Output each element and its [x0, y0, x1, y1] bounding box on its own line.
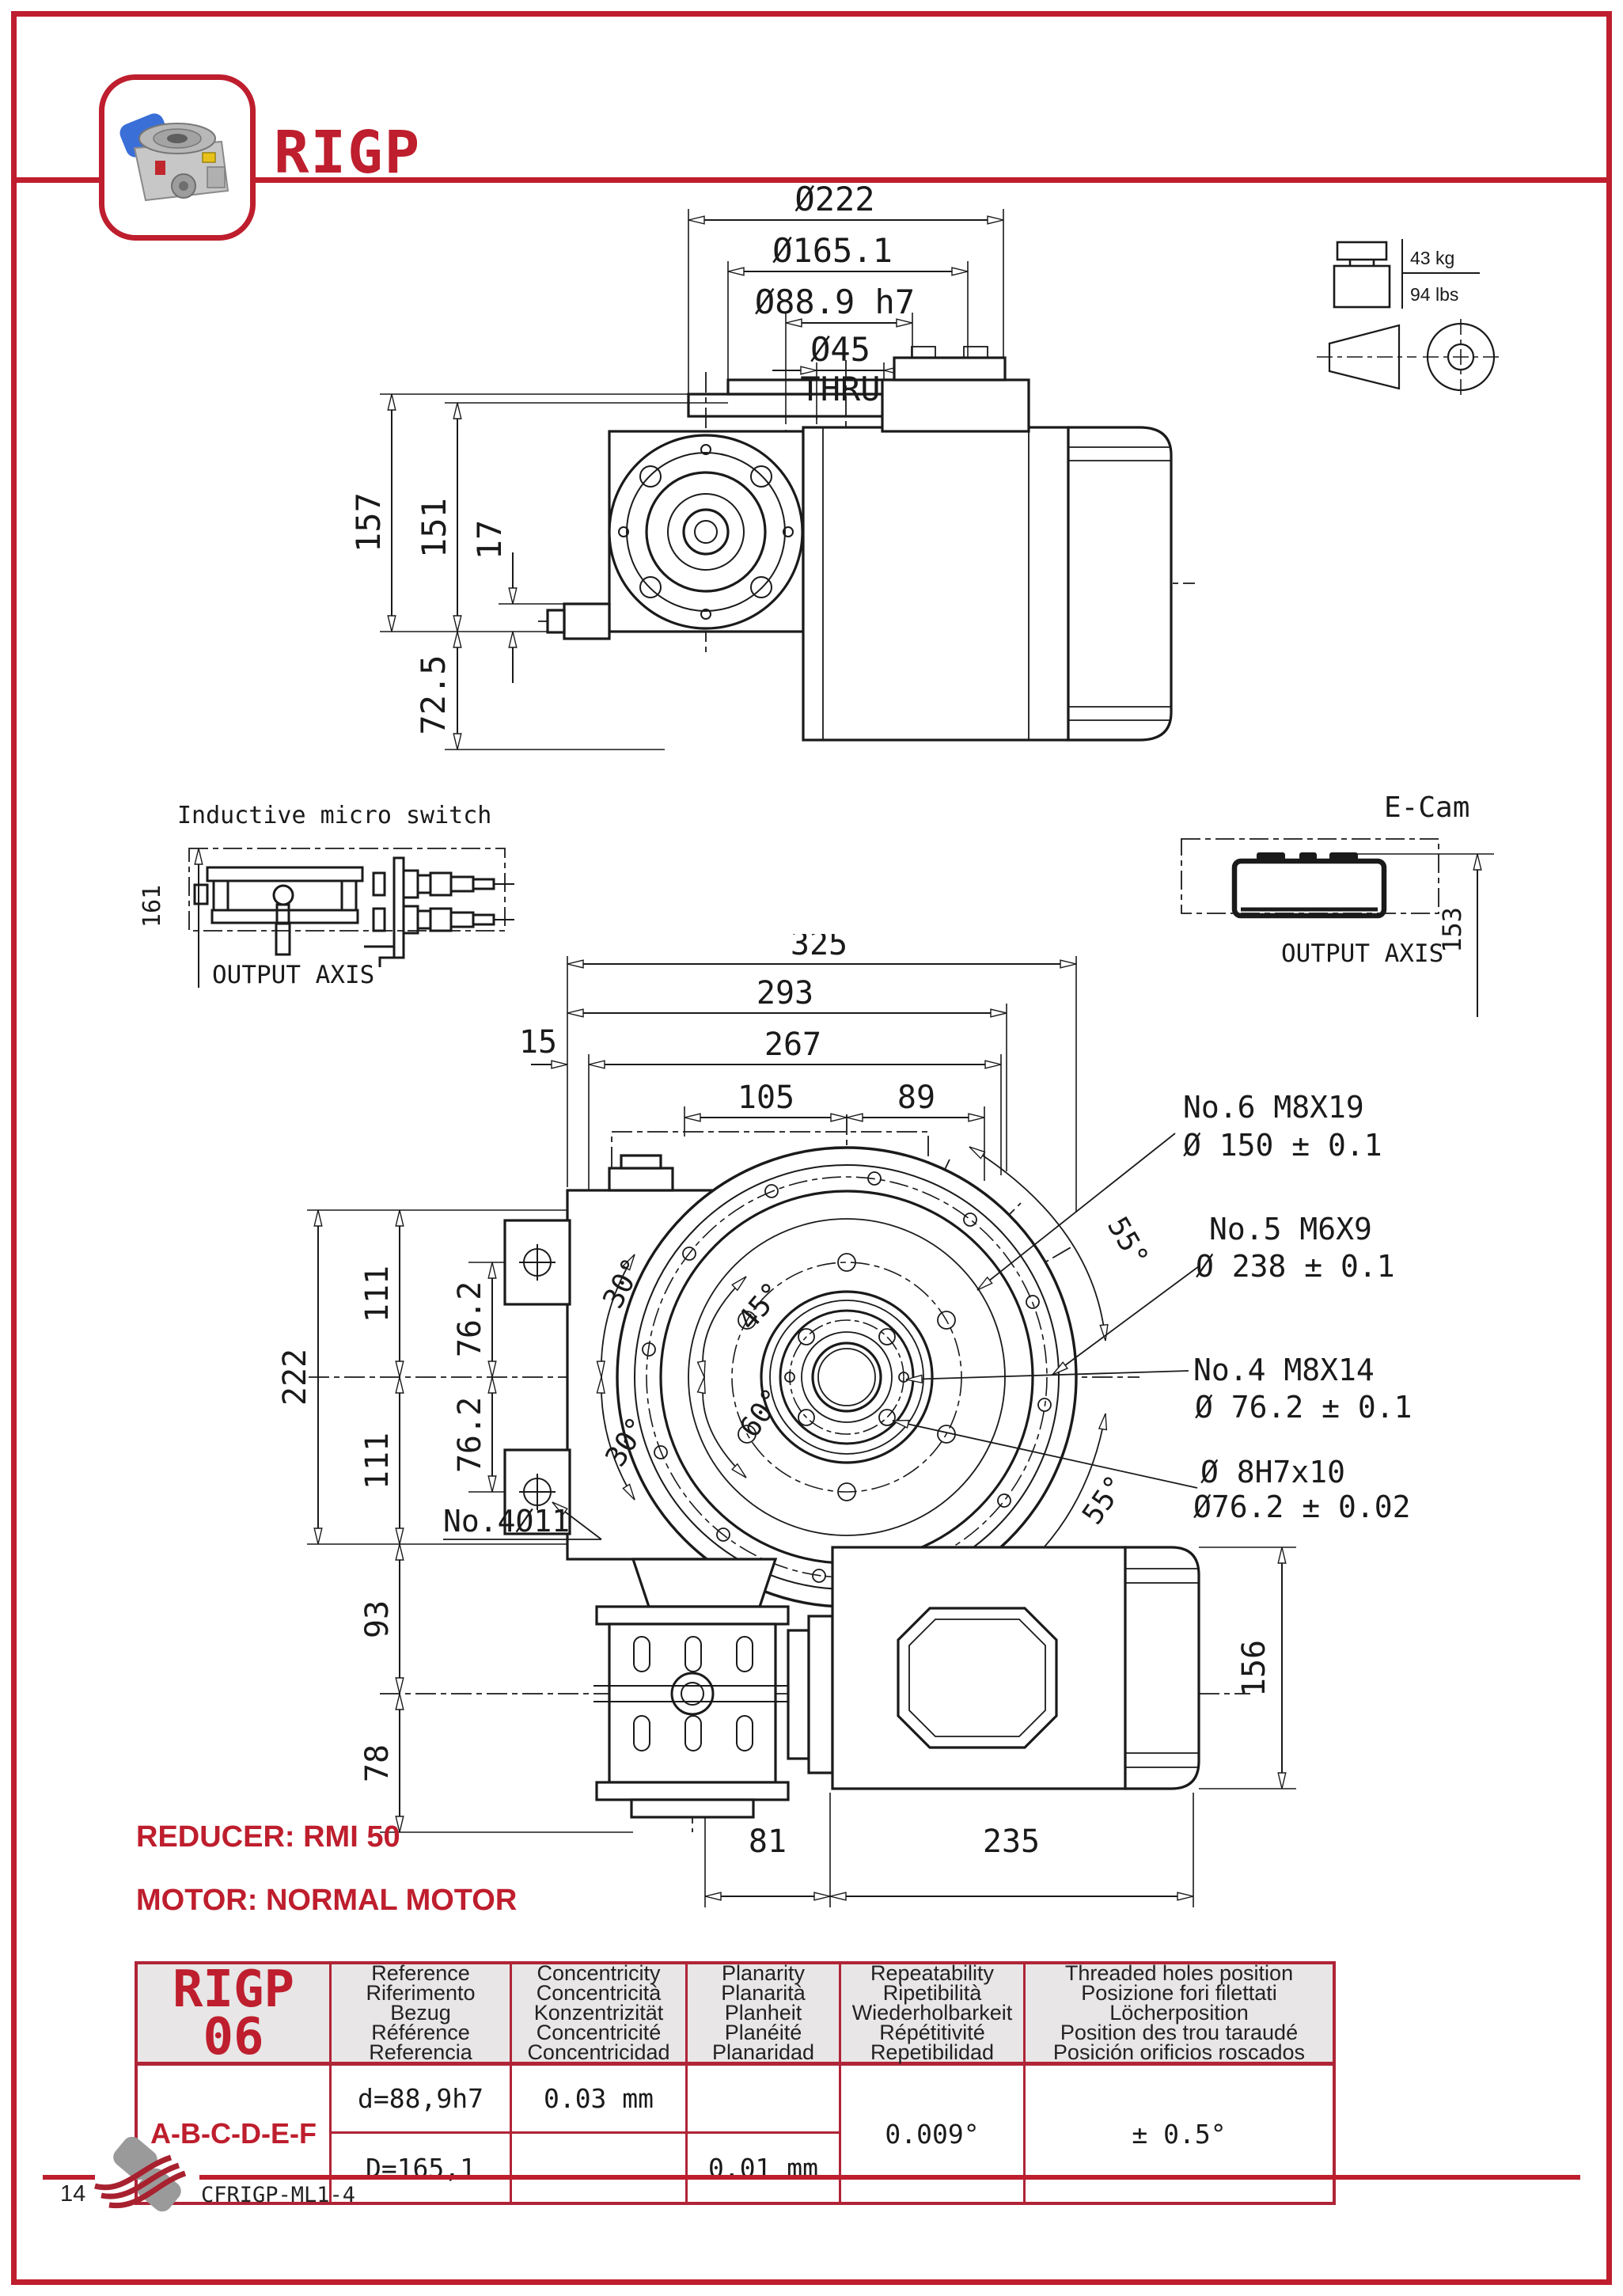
dim-label: 111: [359, 1266, 396, 1323]
product-photo: [111, 91, 244, 224]
table-header-reference: Reference Riferimento Bezug Référence Re…: [332, 1964, 512, 2066]
micro-switch-title: Inductive micro switch: [177, 802, 491, 829]
footer-rule-left: [43, 2175, 95, 2180]
dim-label: Ø222: [794, 182, 874, 218]
table-header-concentricity: Concentricity Concentricità Konzentrizit…: [512, 1964, 688, 2066]
weight-kg: 43 kg: [1410, 248, 1454, 268]
datasheet-page: RIGP: [0, 0, 1623, 2296]
annotation-label: No.6 M8X19: [1183, 1090, 1364, 1125]
projection-symbol-icon: [1317, 319, 1499, 395]
dim-label: Ø88.9 h7: [755, 283, 915, 321]
company-logo: [92, 2137, 203, 2216]
table-value-planarity-2: 0.01 mm: [688, 2134, 841, 2202]
dim-label: 151: [415, 498, 453, 558]
side-view-drawing: Ø222 Ø165.1 Ø88.9 h7 Ø45 THRU 157 151 17…: [269, 182, 1298, 799]
dim-label: 235: [983, 1824, 1040, 1860]
dim-label: 267: [764, 1027, 821, 1063]
annotation-label: Ø 150 ± 0.1: [1183, 1128, 1382, 1163]
table-header-threaded-holes: Threaded holes position Posizione fori f…: [1026, 1964, 1333, 2066]
dim-label: 76.2: [452, 1281, 488, 1357]
page-number: 14: [60, 2181, 85, 2207]
e-cam-title: E-Cam: [1384, 791, 1469, 824]
annotation-label: Ø 8H7x10: [1200, 1455, 1345, 1490]
dim-label: 293: [757, 975, 813, 1011]
dim-label: 93: [359, 1600, 396, 1638]
dim-label: 222: [277, 1349, 313, 1406]
dim-label: 157: [349, 492, 388, 552]
table-model-cell: RIGP 06: [138, 1964, 332, 2066]
table-value-planarity-1: [688, 2066, 841, 2134]
annotation-label: No.4 M8X14: [1193, 1353, 1375, 1387]
motor-note: MOTOR: NORMAL MOTOR: [136, 1884, 517, 1918]
annotation-label: Ø 238 ± 0.1: [1196, 1249, 1395, 1284]
product-photo-box: [99, 74, 256, 241]
reducer-note: REDUCER: RMI 50: [136, 1820, 400, 1854]
weight-lbs: 94 lbs: [1410, 284, 1458, 305]
dim-label: 105: [738, 1080, 794, 1116]
dim-label: 15: [519, 1024, 557, 1061]
dim-label: 111: [359, 1433, 396, 1490]
dim-label: 325: [791, 934, 848, 962]
table-header-planarity: Planarity Planarità Planheit Planéité Pl…: [688, 1964, 841, 2066]
angle-label: 55°: [1101, 1212, 1155, 1273]
dim-label: 161: [138, 885, 166, 928]
dim-label: 89: [897, 1080, 935, 1116]
footer-rule-right: [199, 2175, 1580, 2180]
dim-label: Ø45: [810, 330, 870, 369]
dim-label: 78: [359, 1744, 396, 1782]
table-value-threaded: ± 0.5°: [1026, 2066, 1333, 2202]
weight-symbol: 43 kg 94 lbs: [1306, 230, 1575, 427]
weight-icon: [1337, 242, 1386, 260]
table-model-line2: 06: [203, 2013, 264, 2061]
document-code: CFRIGP-ML1-4: [201, 2183, 355, 2207]
table-header-repeatability: Repeatability Ripetibilità Wiederholbark…: [841, 1964, 1026, 2066]
annotation-label: Ø76.2 ± 0.02: [1193, 1490, 1411, 1524]
table-value-reference-1: d=88,9h7: [332, 2066, 512, 2134]
spec-table: RIGP 06 Reference Riferimento Bezug Réfé…: [135, 1961, 1336, 2205]
table-value-reference-2: D=165,1: [332, 2134, 512, 2202]
dim-label: 81: [749, 1824, 787, 1860]
table-model-line1: RIGP: [173, 1966, 294, 2013]
dim-label: 76.2: [452, 1397, 488, 1473]
annotation-label: No.5 M6X9: [1209, 1212, 1372, 1247]
annotation-label: No.4Ø11: [443, 1504, 570, 1539]
table-value-concentricity-2: [512, 2134, 688, 2202]
dim-label: 156: [1236, 1640, 1272, 1697]
table-value-repeatability: 0.009°: [841, 2066, 1026, 2202]
angle-label: 55°: [1076, 1470, 1132, 1531]
front-view-drawing: 325 293 267 15 105 89 222 111 76.2 76.2 …: [261, 934, 1575, 1923]
dim-label: 72.5: [414, 655, 453, 734]
page-title: RIGP: [274, 119, 421, 187]
table-value-concentricity-1: 0.03 mm: [512, 2066, 688, 2134]
annotation-label: Ø 76.2 ± 0.1: [1195, 1390, 1413, 1425]
dim-label: THRU: [800, 370, 880, 408]
dim-label: Ø165.1: [772, 231, 893, 270]
dim-label: 17: [470, 520, 509, 560]
